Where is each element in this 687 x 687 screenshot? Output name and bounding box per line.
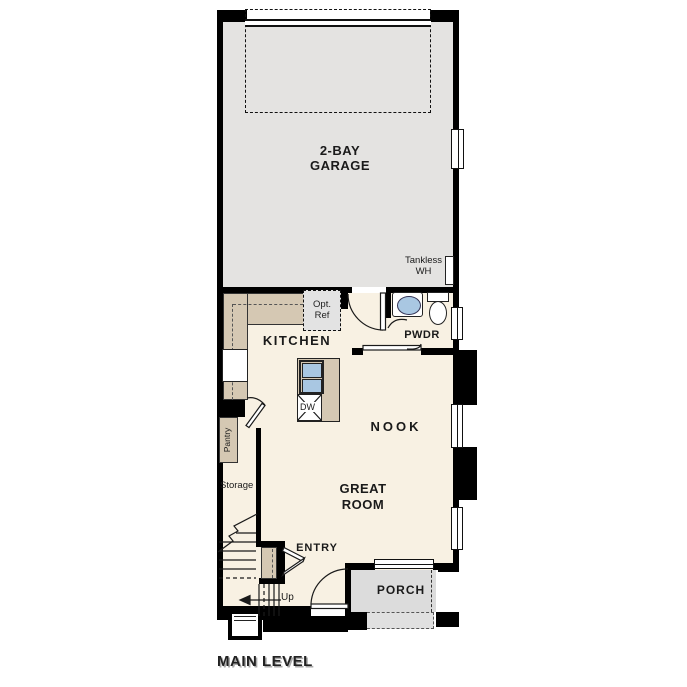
wall-porch-ne-post — [438, 563, 459, 572]
stairs-up-label: Up — [281, 592, 303, 603]
optional-refrigerator: Opt. Ref — [303, 290, 341, 331]
room-label-nook: NOOK — [356, 419, 436, 434]
great-room-label-line2: ROOM — [323, 497, 403, 513]
wall-top-left — [217, 10, 247, 22]
wall-bumpout-upper — [453, 350, 477, 405]
toilet-bowl — [429, 301, 447, 325]
wall-porch-west — [345, 563, 351, 618]
sink-basin-bottom — [302, 379, 322, 393]
room-label-kitchen: KITCHEN — [257, 333, 337, 348]
garage-overhead-door — [245, 19, 431, 27]
great-room-label-line1: GREAT — [323, 481, 403, 497]
front-stoop-step-line — [234, 616, 256, 621]
pantry-label: Pantry — [222, 420, 234, 460]
room-label-garage: 2-BAY GARAGE — [300, 143, 380, 173]
wall-left-exterior — [217, 10, 223, 610]
room-label-powder: PWDR — [396, 329, 448, 341]
sink-basin-top — [302, 363, 322, 378]
tankless-label-line1: Tankless — [401, 255, 446, 266]
storage-label: Storage — [220, 480, 264, 491]
window-porch-front — [374, 559, 434, 569]
entry-closet-dash-line — [272, 549, 273, 578]
wall-powder-west — [386, 293, 391, 318]
window-nook — [451, 404, 463, 448]
tankless-label-line2: WH — [401, 266, 446, 277]
tankless-water-heater — [445, 256, 454, 285]
entry-closet-shelf — [261, 547, 277, 579]
wall-powder-south-left — [352, 348, 363, 355]
wall-pantry-stub — [217, 400, 245, 417]
wall-porch-se-post — [436, 612, 459, 627]
porch-step — [362, 612, 434, 629]
opt-ref-label-line1: Opt. — [304, 299, 340, 310]
garage-label-line2: GARAGE — [300, 158, 380, 173]
opt-ref-label-line2: Ref — [304, 310, 340, 321]
window-powder-room — [451, 307, 463, 340]
front-stoop — [228, 610, 262, 640]
kitchen-counter-left-run — [223, 293, 248, 400]
room-label-porch: PORCH — [366, 583, 436, 597]
window-great-room — [451, 507, 463, 550]
wall-bottom-step — [263, 616, 348, 632]
counter-overhang-dash-horizontal — [233, 304, 303, 305]
plan-title: MAIN LEVEL — [217, 653, 417, 670]
garage-label-line1: 2-BAY — [300, 143, 380, 158]
powder-room-sink-basin — [397, 296, 421, 315]
tankless-wh-label: Tankless WH — [401, 255, 446, 277]
room-label-great-room: GREAT ROOM — [323, 481, 403, 513]
range-cooktop — [222, 349, 248, 382]
room-label-entry: ENTRY — [294, 542, 340, 554]
floor-plan-canvas: Opt. Ref — [0, 0, 687, 687]
wall-porch-sw-stub — [348, 612, 367, 630]
dishwasher-label: DW — [299, 402, 316, 412]
wall-bumpout-lower — [453, 447, 477, 500]
wall-hall-stub — [341, 287, 348, 309]
window-garage-right — [451, 129, 464, 169]
